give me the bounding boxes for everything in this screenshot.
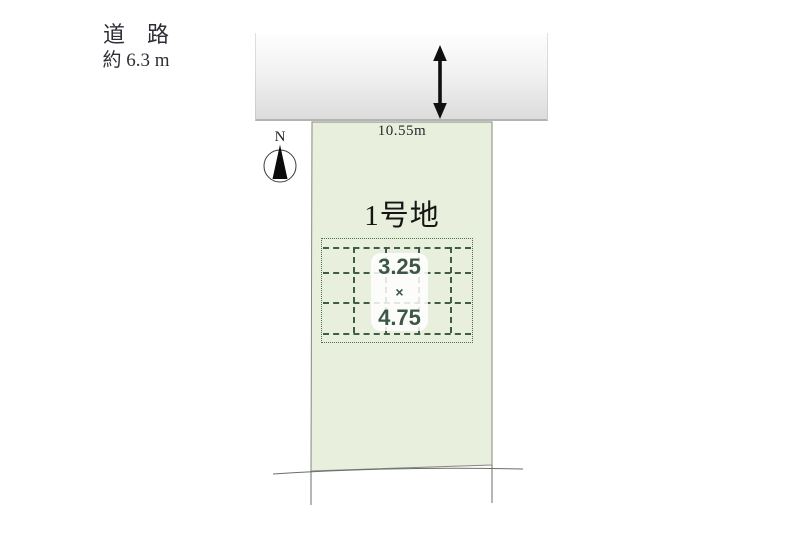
building-grid: 3.25 × 4.75 [321,238,473,343]
compass-north-label: N [266,129,294,146]
building-width-label: 3.25 [378,255,421,278]
lot-diagram: 道 路 約 6.3 m N 10.55m 1号地 [0,0,801,534]
grid-line-v [450,247,452,333]
building-dims-box: 3.25 × 4.75 [371,253,428,331]
building-depth-label: 4.75 [378,306,421,329]
parcel-name-label: 1号地 [332,192,472,234]
frontage-label: 10.55m [352,123,452,140]
road-width-arrow-icon [433,45,447,119]
grid-line-h [323,333,471,335]
grid-line-h [323,247,471,249]
grid-line-v [353,247,355,333]
compass-icon [264,145,296,183]
multiply-sign: × [395,285,403,299]
